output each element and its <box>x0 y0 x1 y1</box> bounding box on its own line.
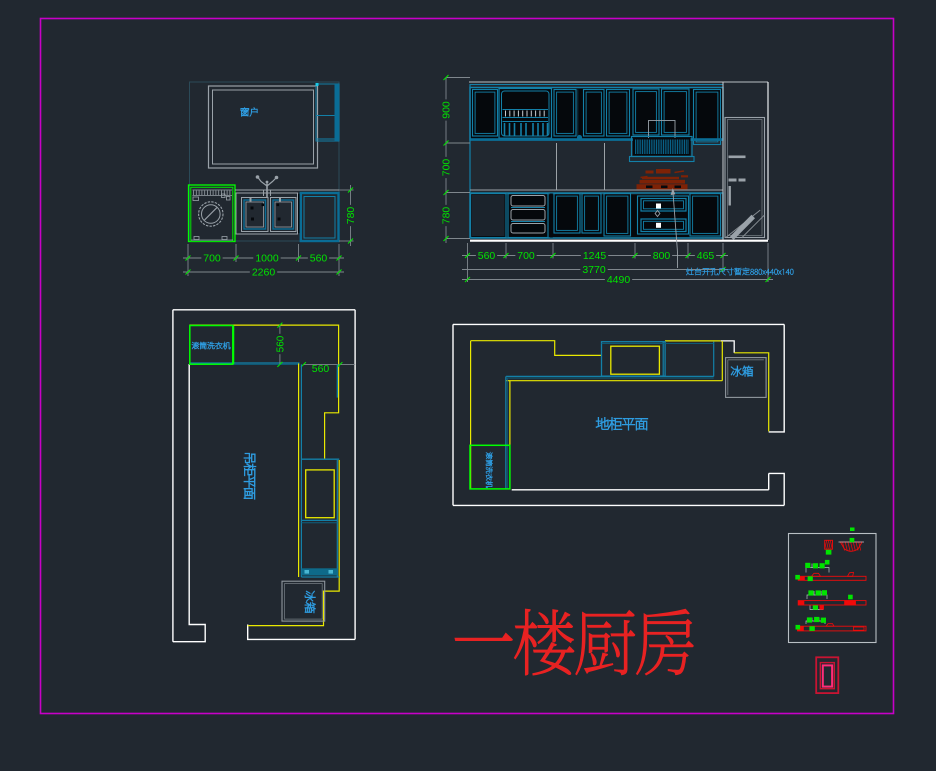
svg-text:900: 900 <box>441 101 453 119</box>
svg-text:1245: 1245 <box>583 250 607 262</box>
svg-text:780: 780 <box>441 207 453 225</box>
svg-text:560: 560 <box>312 363 330 375</box>
svg-text:560: 560 <box>310 253 328 265</box>
svg-text:560: 560 <box>478 250 496 262</box>
svg-text:2260: 2260 <box>252 267 276 279</box>
svg-text:3770: 3770 <box>582 264 606 276</box>
svg-text:4490: 4490 <box>607 274 631 286</box>
svg-text:780: 780 <box>345 207 357 225</box>
svg-text:700: 700 <box>441 159 453 177</box>
svg-text:800: 800 <box>653 250 671 262</box>
svg-text:700: 700 <box>517 250 535 262</box>
svg-text:1000: 1000 <box>255 253 279 265</box>
svg-text:700: 700 <box>203 253 221 265</box>
svg-text:560: 560 <box>275 335 286 352</box>
svg-text:465: 465 <box>697 250 715 262</box>
